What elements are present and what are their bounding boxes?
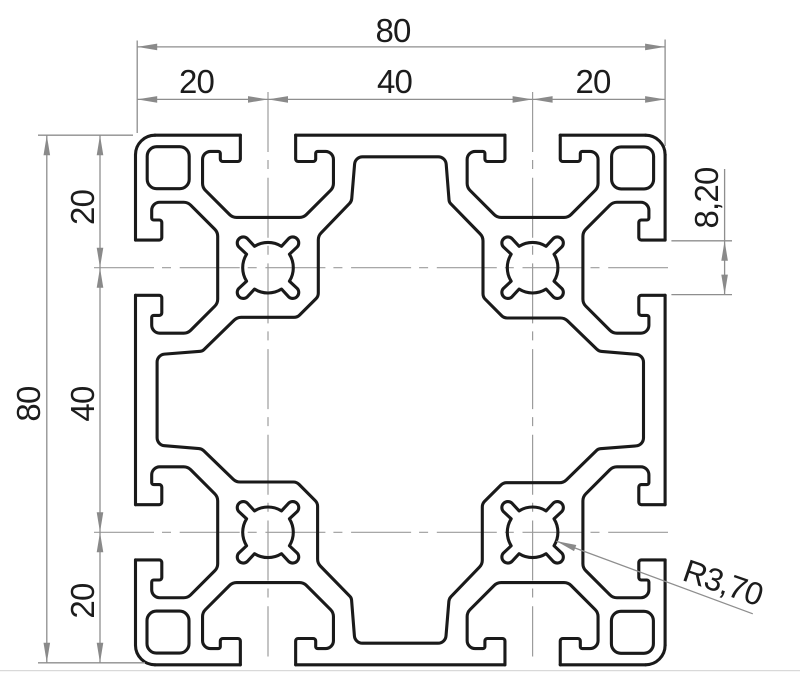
svg-text:20: 20 [179, 63, 215, 100]
svg-text:8,20: 8,20 [688, 167, 725, 228]
svg-text:20: 20 [575, 63, 611, 100]
svg-text:20: 20 [64, 583, 101, 619]
svg-text:20: 20 [64, 189, 101, 225]
svg-text:40: 40 [377, 63, 413, 100]
svg-text:80: 80 [10, 386, 47, 422]
svg-text:40: 40 [64, 386, 101, 422]
svg-text:80: 80 [375, 12, 411, 49]
